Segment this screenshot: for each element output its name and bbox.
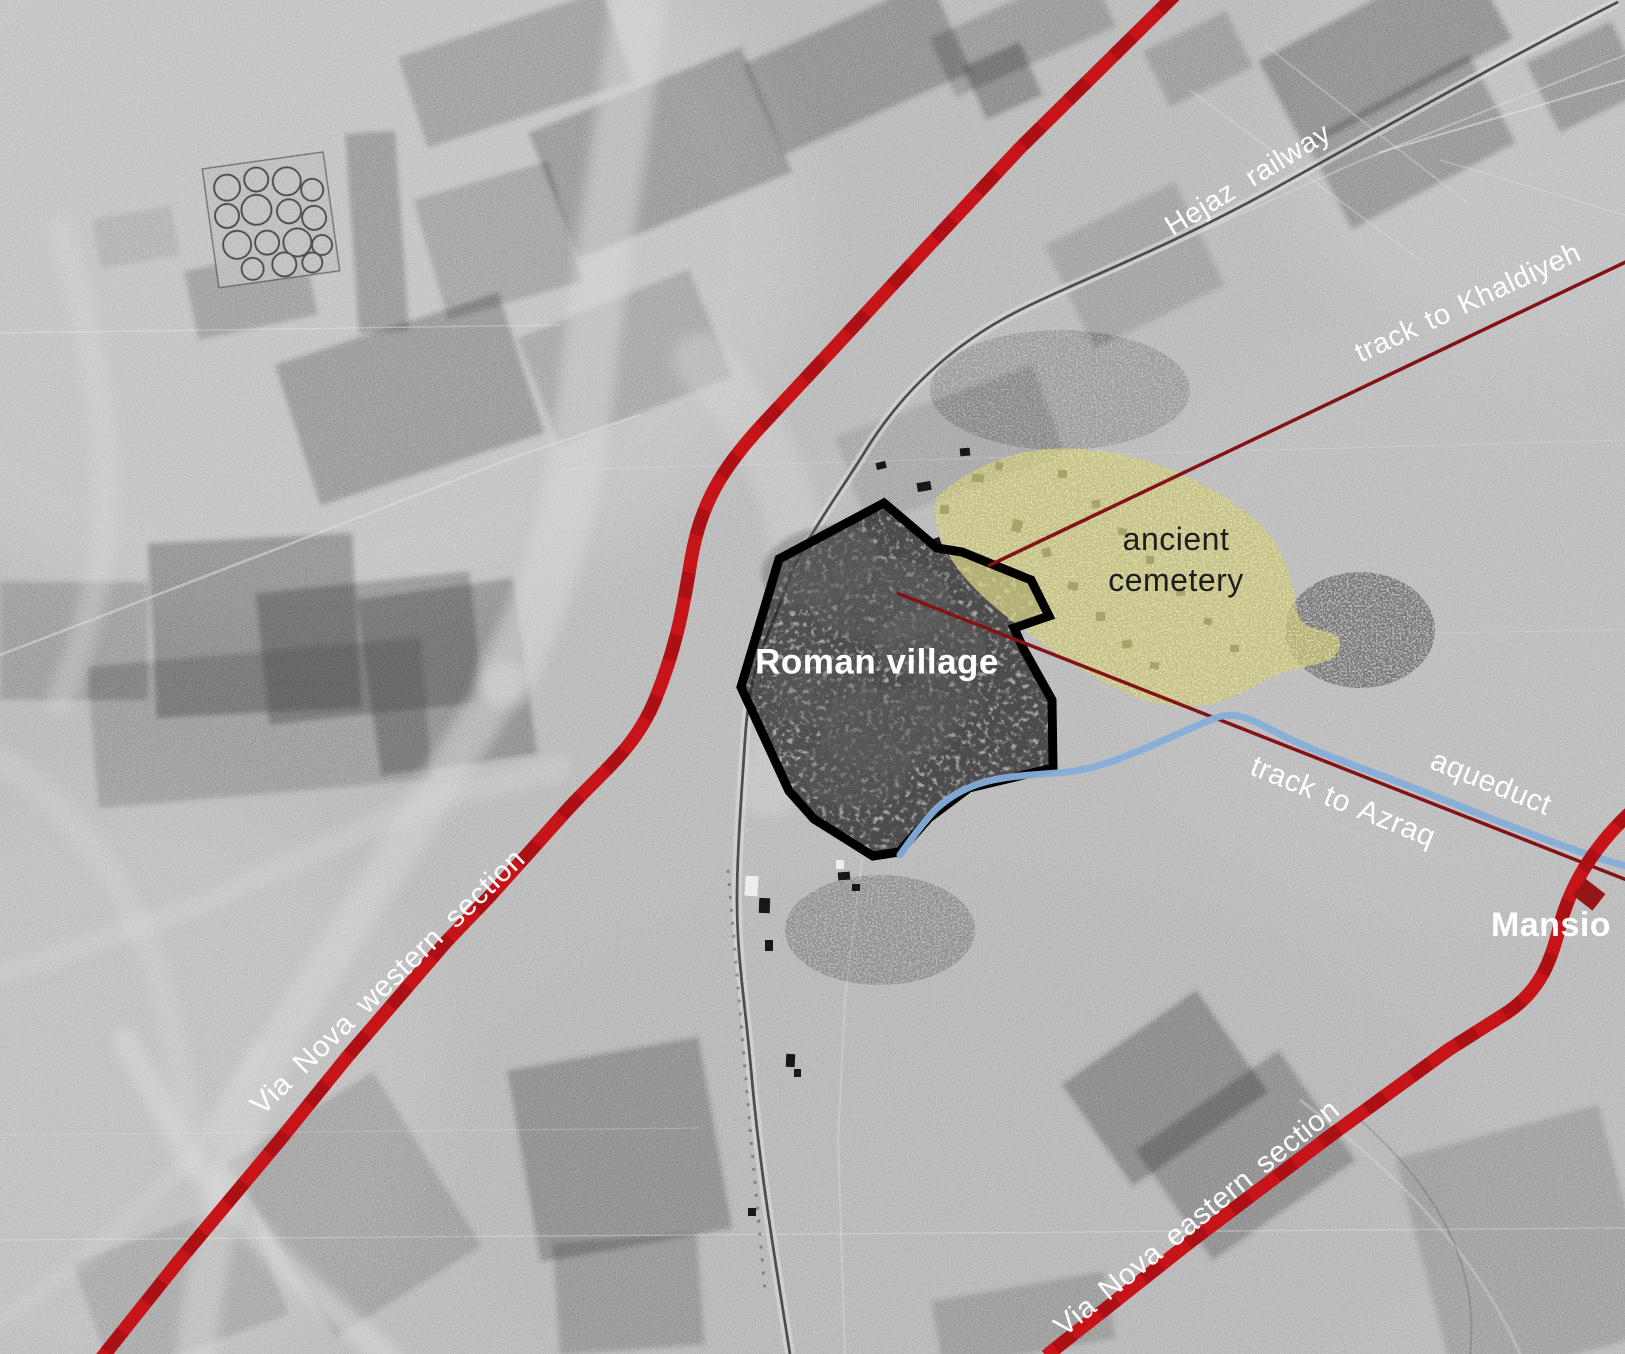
label-ancient-cemetery-line2: cemetery <box>1108 564 1244 598</box>
annotated-aerial-map: Hejaz railway track to Khaldiyeh ancient… <box>0 0 1625 1354</box>
label-roman-village: Roman village <box>755 645 999 682</box>
label-ancient-cemetery-line1: ancient <box>1123 523 1230 557</box>
label-mansio: Mansio <box>1491 908 1611 944</box>
